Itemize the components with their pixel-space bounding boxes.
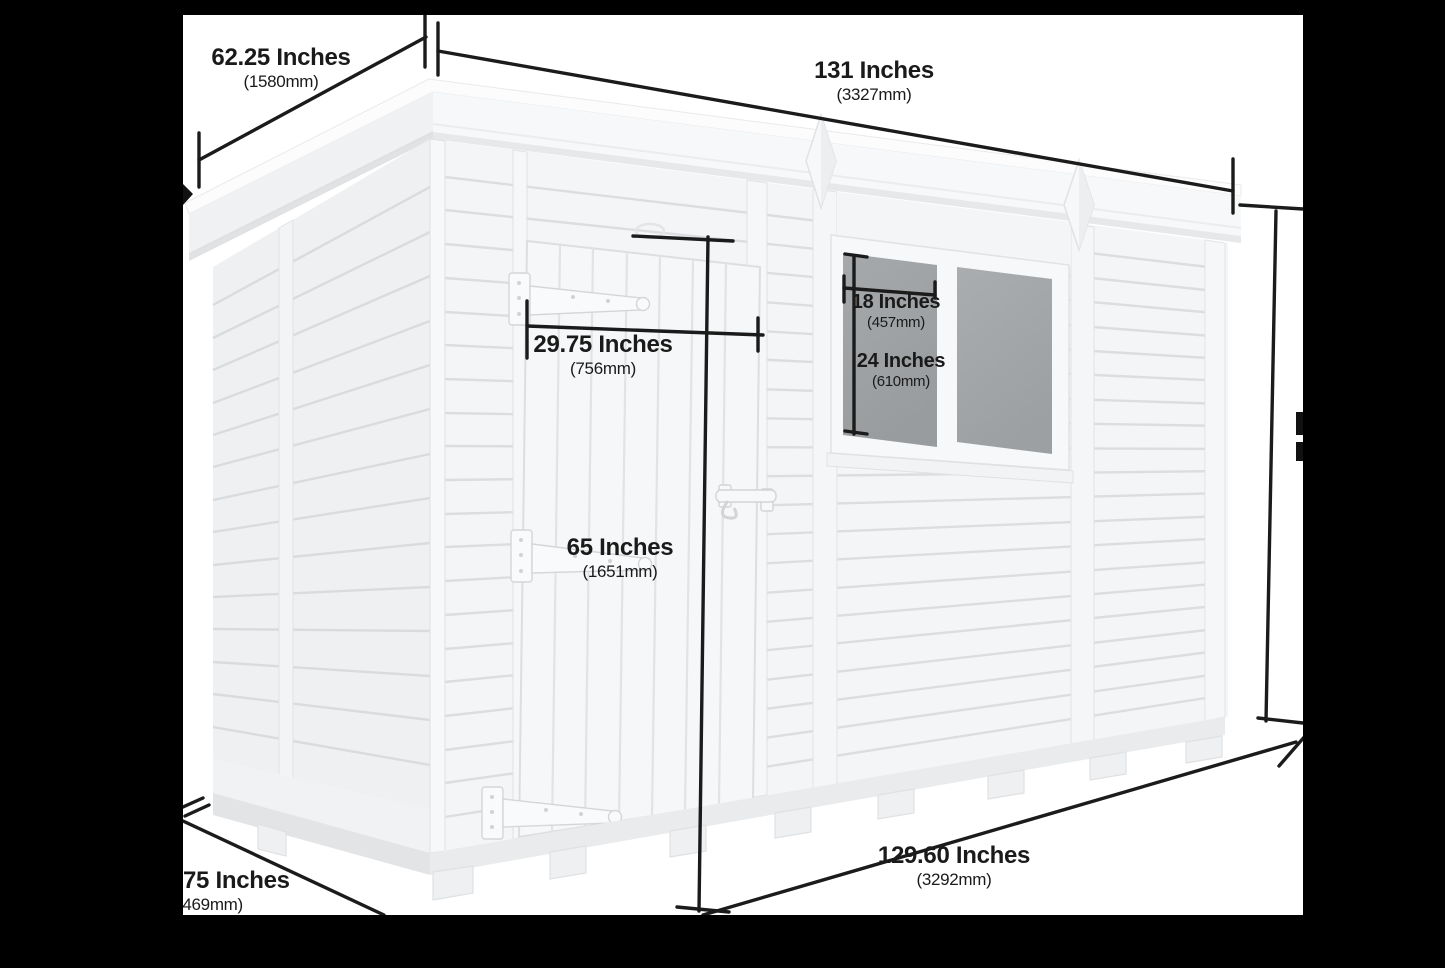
base-depth-inches: 75 Inches xyxy=(183,868,290,894)
window-width-label: 18 Inches (457mm) xyxy=(852,292,940,331)
door-height-mm: (1651mm) xyxy=(567,563,674,581)
corner-trim-left xyxy=(430,139,445,853)
window-pane-right xyxy=(957,267,1052,454)
door-width-label: 29.75 Inches (756mm) xyxy=(533,332,672,378)
roof-width-inches: 131 Inches xyxy=(814,58,934,84)
dim-base-depth-tick-b xyxy=(183,798,203,807)
corner-trim-right xyxy=(1205,240,1225,721)
door-height-inches: 65 Inches xyxy=(567,535,674,561)
roof-width-mm: (3327mm) xyxy=(814,86,934,104)
door-width-inches: 29.75 Inches xyxy=(533,332,672,358)
roof-depth-inches: 62.25 Inches xyxy=(211,45,350,71)
base-width-label: 129.60 Inches (3292mm) xyxy=(878,843,1030,889)
window-height-inches: 24 Inches xyxy=(857,351,945,373)
dim-base-width-tick-right xyxy=(1279,735,1303,766)
base-width-inches: 129.60 Inches xyxy=(878,843,1030,869)
shed-diagram-canvas: 62.25 Inches (1580mm) 131 Inches (3327mm… xyxy=(183,15,1303,915)
base-depth-label-clipped: 75 Inches (469mm) xyxy=(183,868,290,914)
window-width-mm: (457mm) xyxy=(852,315,940,331)
door-height-label: 65 Inches (1651mm) xyxy=(567,535,674,581)
shed-illustration xyxy=(183,15,1303,915)
roof-width-label: 131 Inches (3327mm) xyxy=(814,58,934,104)
window-height-label: 24 Inches (610mm) xyxy=(857,351,945,390)
foot xyxy=(878,789,914,819)
roof-depth-label: 62.25 Inches (1580mm) xyxy=(211,45,350,91)
window-assembly xyxy=(827,192,1073,483)
diagram-stage: 62.25 Inches (1580mm) 131 Inches (3327mm… xyxy=(0,0,1445,968)
foot xyxy=(550,846,586,879)
roof-depth-mm: (1580mm) xyxy=(211,73,350,91)
side-wall-trim xyxy=(279,220,293,816)
latch-bolt-bar xyxy=(716,490,776,502)
dim-height-line-right xyxy=(1266,211,1276,721)
mid-trim-window-side xyxy=(1071,224,1094,744)
clipped-height-label-fragment xyxy=(1296,442,1303,461)
side-wall xyxy=(213,139,430,853)
dim-height-tick-top xyxy=(1240,205,1303,209)
window-height-mm: (610mm) xyxy=(857,374,945,390)
base-depth-mm: (469mm) xyxy=(183,896,290,914)
door-width-mm: (756mm) xyxy=(533,360,672,378)
base-width-mm: (3292mm) xyxy=(878,871,1030,889)
window-width-inches: 18 Inches xyxy=(852,292,940,314)
foot xyxy=(433,866,473,900)
dim-base-depth-tick-a xyxy=(185,805,209,816)
foot xyxy=(775,807,811,838)
clipped-height-label-fragment xyxy=(1296,412,1303,435)
